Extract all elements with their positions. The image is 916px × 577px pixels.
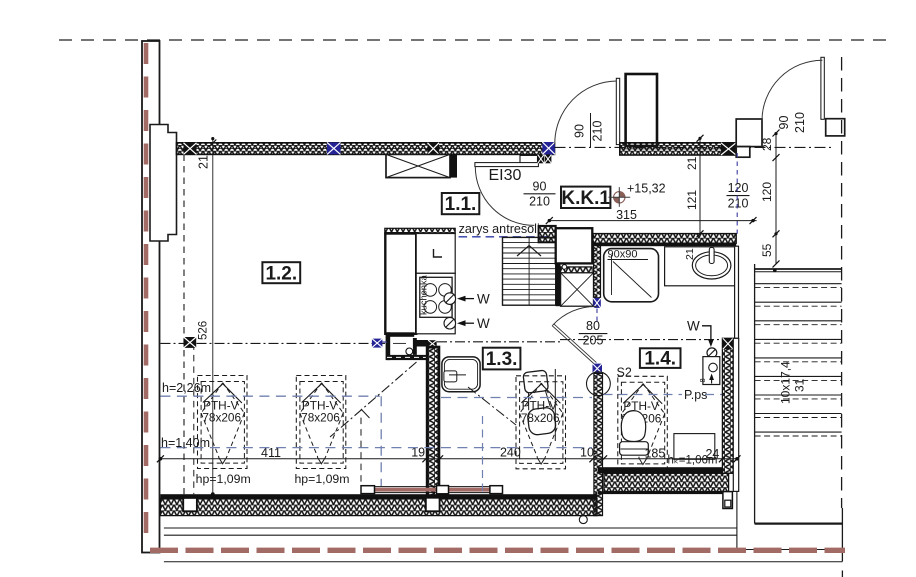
svg-text:h=1,40m: h=1,40m [161, 436, 210, 450]
svg-text:+15,32: +15,32 [627, 181, 666, 195]
svg-text:10x17,4: 10x17,4 [779, 361, 793, 404]
svg-text:1.3.: 1.3. [486, 349, 518, 370]
svg-text:21: 21 [684, 248, 696, 260]
svg-text:W: W [477, 316, 490, 331]
svg-text:55: 55 [760, 243, 774, 257]
svg-text:P.ps: P.ps [684, 388, 707, 402]
svg-text:21: 21 [197, 155, 211, 169]
svg-text:hₖ=1,06m: hₖ=1,06m [668, 455, 718, 467]
svg-text:90: 90 [777, 116, 791, 130]
svg-text:W: W [477, 292, 490, 307]
svg-text:8: 8 [698, 378, 707, 382]
svg-text:1.4.: 1.4. [644, 348, 676, 369]
svg-text:zarys antresoli: zarys antresoli [459, 222, 540, 236]
svg-text:210: 210 [591, 121, 605, 142]
svg-text:hp=1,09m: hp=1,09m [196, 472, 251, 486]
svg-text:kuchenka: kuchenka [419, 274, 429, 315]
svg-text:210: 210 [793, 112, 807, 133]
svg-text:hp=1,09m: hp=1,09m [294, 472, 349, 486]
svg-text:K.K.1: K.K.1 [561, 188, 610, 209]
svg-text:h=2,26m: h=2,26m [162, 381, 211, 395]
svg-text:205: 205 [583, 333, 604, 347]
svg-text:526: 526 [198, 321, 210, 340]
svg-text:121: 121 [685, 190, 699, 210]
svg-text:120: 120 [728, 181, 749, 195]
svg-text:90: 90 [573, 124, 587, 138]
svg-text:EI30: EI30 [489, 167, 522, 184]
svg-text:28: 28 [760, 137, 774, 151]
svg-text:90x90: 90x90 [608, 249, 638, 261]
svg-text:210: 210 [728, 197, 749, 211]
svg-text:315: 315 [616, 208, 637, 222]
svg-text:W: W [687, 319, 700, 334]
svg-text:31: 31 [793, 378, 807, 392]
svg-text:185: 185 [644, 447, 665, 461]
svg-text:210: 210 [529, 195, 550, 209]
svg-text:1.2.: 1.2. [265, 263, 297, 284]
svg-text:120: 120 [760, 182, 774, 202]
svg-text:21: 21 [685, 156, 699, 170]
svg-text:80: 80 [586, 319, 600, 333]
svg-text:90: 90 [533, 180, 547, 194]
svg-text:S2: S2 [617, 366, 632, 380]
svg-text:1.1.: 1.1. [445, 194, 477, 215]
